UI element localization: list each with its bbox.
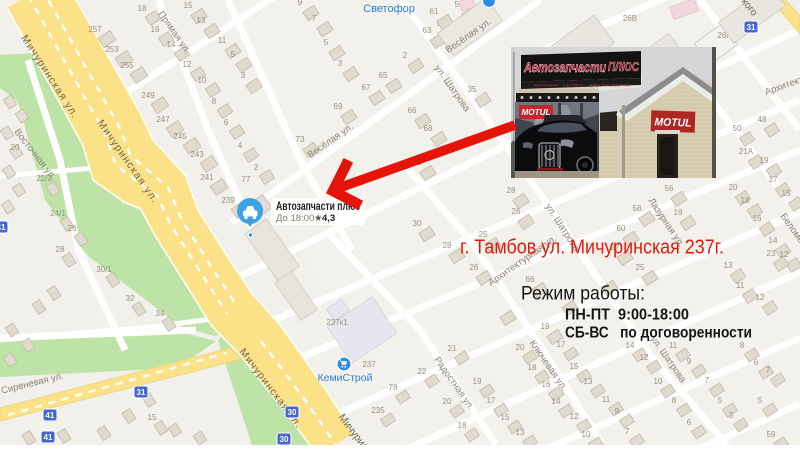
- svg-text:17: 17: [769, 175, 778, 184]
- svg-text:20: 20: [729, 183, 738, 192]
- svg-text:11: 11: [736, 281, 745, 290]
- svg-text:ПН-ПТ 9:00-18:00: ПН-ПТ 9:00-18:00: [565, 307, 689, 324]
- svg-text:63: 63: [423, 26, 432, 35]
- svg-text:50: 50: [733, 124, 742, 133]
- svg-text:15: 15: [570, 362, 579, 371]
- svg-text:13: 13: [724, 261, 733, 270]
- svg-text:19: 19: [674, 208, 683, 217]
- svg-text:78: 78: [389, 383, 398, 392]
- svg-text:10: 10: [582, 430, 591, 439]
- svg-text:14: 14: [769, 236, 778, 245]
- svg-text:13: 13: [584, 377, 593, 386]
- svg-text:56: 56: [665, 184, 674, 193]
- svg-text:10: 10: [654, 377, 663, 386]
- svg-text:6: 6: [687, 418, 692, 427]
- svg-text:7: 7: [766, 366, 771, 375]
- svg-text:3: 3: [729, 411, 734, 420]
- svg-text:г. Тамбов ул. Мичуринская 237г: г. Тамбов ул. Мичуринская 237г.: [460, 236, 724, 259]
- svg-text:245: 245: [173, 132, 187, 141]
- svg-text:257: 257: [88, 25, 102, 34]
- svg-text:20: 20: [443, 397, 452, 406]
- svg-text:2: 2: [254, 163, 259, 172]
- svg-text:23: 23: [767, 249, 776, 258]
- svg-text:12: 12: [570, 412, 579, 421]
- svg-text:СБ-ВС по договоренности: СБ-ВС по договоренности: [565, 325, 752, 342]
- svg-text:Режим работы:: Режим работы:: [521, 283, 645, 305]
- svg-text:41: 41: [0, 223, 6, 232]
- svg-text:MOTUL: MOTUL: [654, 116, 692, 129]
- svg-text:13: 13: [197, 16, 206, 25]
- svg-text:59: 59: [767, 430, 776, 439]
- svg-text:8: 8: [740, 341, 745, 350]
- svg-text:До 18:00: До 18:00: [276, 213, 314, 224]
- svg-text:66: 66: [408, 106, 417, 115]
- svg-text:20: 20: [11, 143, 20, 152]
- svg-text:255: 255: [120, 61, 134, 70]
- svg-text:241: 241: [200, 173, 214, 182]
- svg-text:7: 7: [312, 14, 317, 23]
- svg-text:11: 11: [218, 36, 227, 45]
- svg-text:18: 18: [138, 4, 147, 13]
- svg-text:7: 7: [625, 427, 630, 436]
- svg-text:10: 10: [198, 76, 207, 85]
- svg-text:20: 20: [516, 343, 525, 352]
- svg-text:19: 19: [473, 377, 482, 386]
- svg-text:3: 3: [241, 71, 246, 80]
- svg-text:24/1: 24/1: [50, 209, 66, 218]
- svg-text:31: 31: [747, 23, 756, 32]
- svg-text:67: 67: [362, 83, 371, 92]
- svg-text:9: 9: [615, 407, 620, 416]
- svg-text:26: 26: [68, 224, 77, 233]
- svg-text:4,3: 4,3: [322, 213, 335, 224]
- svg-text:22: 22: [418, 367, 427, 376]
- svg-text:25: 25: [636, 263, 645, 272]
- svg-text:237: 237: [362, 360, 376, 369]
- svg-text:8: 8: [672, 396, 677, 405]
- svg-text:19: 19: [541, 322, 550, 331]
- svg-text:Светофор: Светофор: [363, 3, 415, 15]
- svg-text:15: 15: [148, 413, 157, 422]
- svg-text:12: 12: [183, 60, 192, 69]
- svg-text:11: 11: [669, 341, 678, 350]
- svg-text:15: 15: [184, 1, 193, 10]
- svg-text:17: 17: [487, 396, 496, 405]
- svg-text:Автозапчасти: Автозапчасти: [523, 59, 606, 75]
- svg-text:60: 60: [617, 224, 626, 233]
- svg-text:4: 4: [238, 141, 243, 150]
- svg-text:35: 35: [468, 85, 477, 94]
- svg-text:247: 247: [156, 115, 170, 124]
- svg-text:235: 235: [371, 406, 385, 415]
- svg-text:5: 5: [231, 50, 236, 59]
- svg-text:16: 16: [753, 214, 762, 223]
- svg-text:31: 31: [137, 388, 146, 397]
- svg-text:26: 26: [470, 263, 479, 272]
- svg-text:77: 77: [242, 175, 251, 184]
- svg-text:30/1: 30/1: [96, 265, 112, 274]
- svg-text:18: 18: [458, 421, 467, 430]
- svg-text:41: 41: [44, 433, 53, 442]
- svg-text:249: 249: [141, 91, 155, 100]
- svg-text:28: 28: [507, 186, 516, 195]
- svg-text:15: 15: [782, 189, 791, 198]
- svg-text:6: 6: [224, 118, 229, 127]
- svg-text:21: 21: [448, 344, 457, 353]
- svg-text:2: 2: [403, 51, 408, 60]
- svg-text:13: 13: [516, 428, 525, 437]
- svg-text:253: 253: [105, 45, 119, 54]
- svg-text:5: 5: [718, 396, 723, 405]
- svg-text:9: 9: [687, 357, 692, 366]
- svg-text:14: 14: [552, 397, 561, 406]
- svg-text:28: 28: [56, 245, 65, 254]
- svg-text:69: 69: [334, 102, 343, 111]
- svg-text:11: 11: [602, 395, 611, 404]
- svg-text:21А: 21А: [739, 147, 754, 156]
- svg-text:34: 34: [156, 309, 165, 318]
- svg-text:58: 58: [633, 204, 642, 213]
- svg-text:18: 18: [741, 196, 750, 205]
- svg-text:12: 12: [640, 353, 649, 362]
- svg-text:28: 28: [443, 241, 452, 250]
- svg-text:243: 243: [190, 150, 204, 159]
- svg-text:30: 30: [288, 408, 297, 417]
- svg-text:73: 73: [296, 135, 305, 144]
- svg-text:КемиСтрой: КемиСтрой: [318, 372, 373, 384]
- svg-text:3: 3: [338, 59, 343, 68]
- svg-text:6: 6: [754, 358, 759, 367]
- svg-text:18: 18: [528, 363, 537, 372]
- svg-text:19: 19: [760, 156, 769, 165]
- svg-text:68: 68: [424, 124, 433, 133]
- svg-text:48: 48: [758, 115, 767, 124]
- svg-text:5: 5: [324, 38, 329, 47]
- svg-text:8: 8: [212, 97, 217, 106]
- svg-text:14: 14: [626, 341, 635, 350]
- svg-text:32: 32: [126, 294, 135, 303]
- svg-text:15: 15: [501, 413, 510, 422]
- svg-text:65: 65: [379, 71, 388, 80]
- svg-text:9: 9: [298, 0, 303, 7]
- svg-text:237к1: 237к1: [326, 318, 348, 327]
- svg-text:239: 239: [221, 196, 235, 205]
- svg-text:61: 61: [430, 7, 439, 16]
- svg-text:5: 5: [758, 396, 763, 405]
- svg-text:7: 7: [705, 376, 710, 385]
- svg-text:12: 12: [756, 293, 765, 302]
- svg-text:ПЛЮС: ПЛЮС: [608, 59, 639, 74]
- svg-text:30: 30: [413, 219, 422, 228]
- svg-text:26В: 26В: [623, 14, 637, 23]
- svg-text:16: 16: [151, 25, 160, 34]
- svg-text:МАГАЗИН · СЕРВИС · АВТОРАЗБОРК: МАГАЗИН · СЕРВИС · АВТОРАЗБОРКА: [534, 83, 630, 88]
- svg-text:26: 26: [512, 207, 521, 216]
- svg-text:41: 41: [46, 411, 55, 420]
- svg-text:30: 30: [280, 435, 289, 444]
